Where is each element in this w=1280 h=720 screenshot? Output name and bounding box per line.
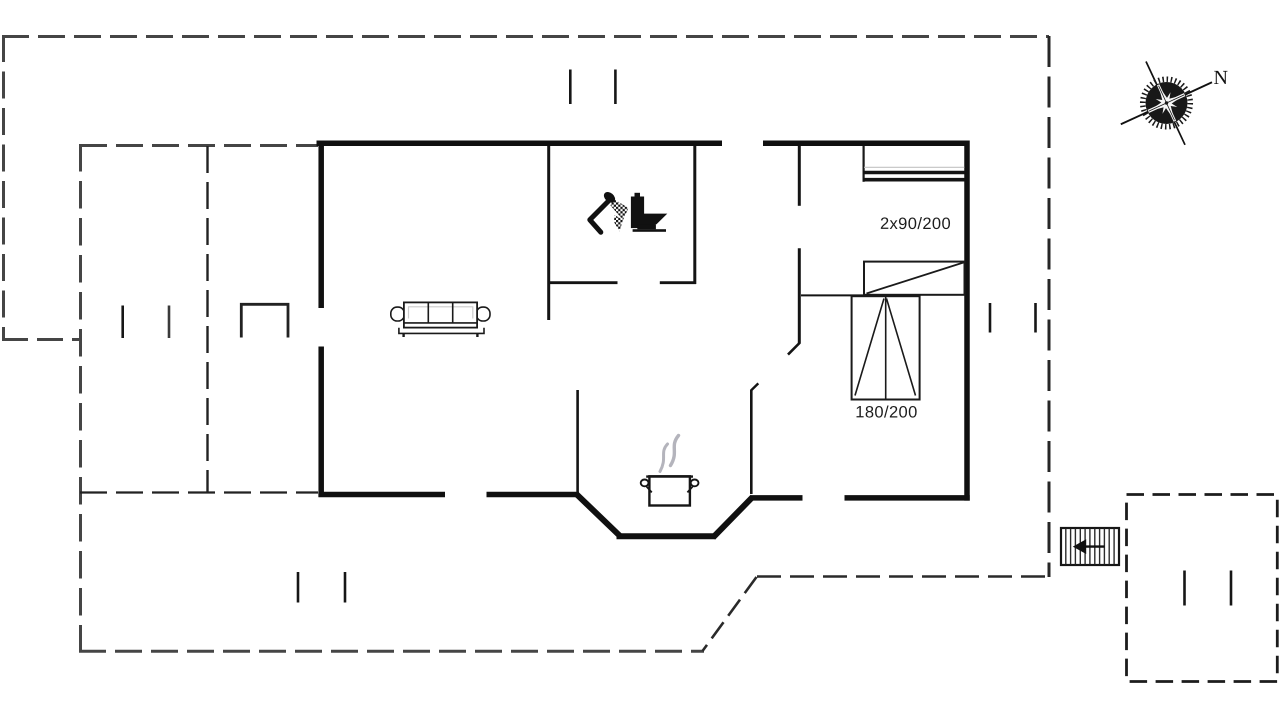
svg-text:N: N [1213, 67, 1227, 89]
svg-text:2x90/200: 2x90/200 [880, 215, 951, 233]
svg-text:180/200: 180/200 [855, 403, 917, 421]
